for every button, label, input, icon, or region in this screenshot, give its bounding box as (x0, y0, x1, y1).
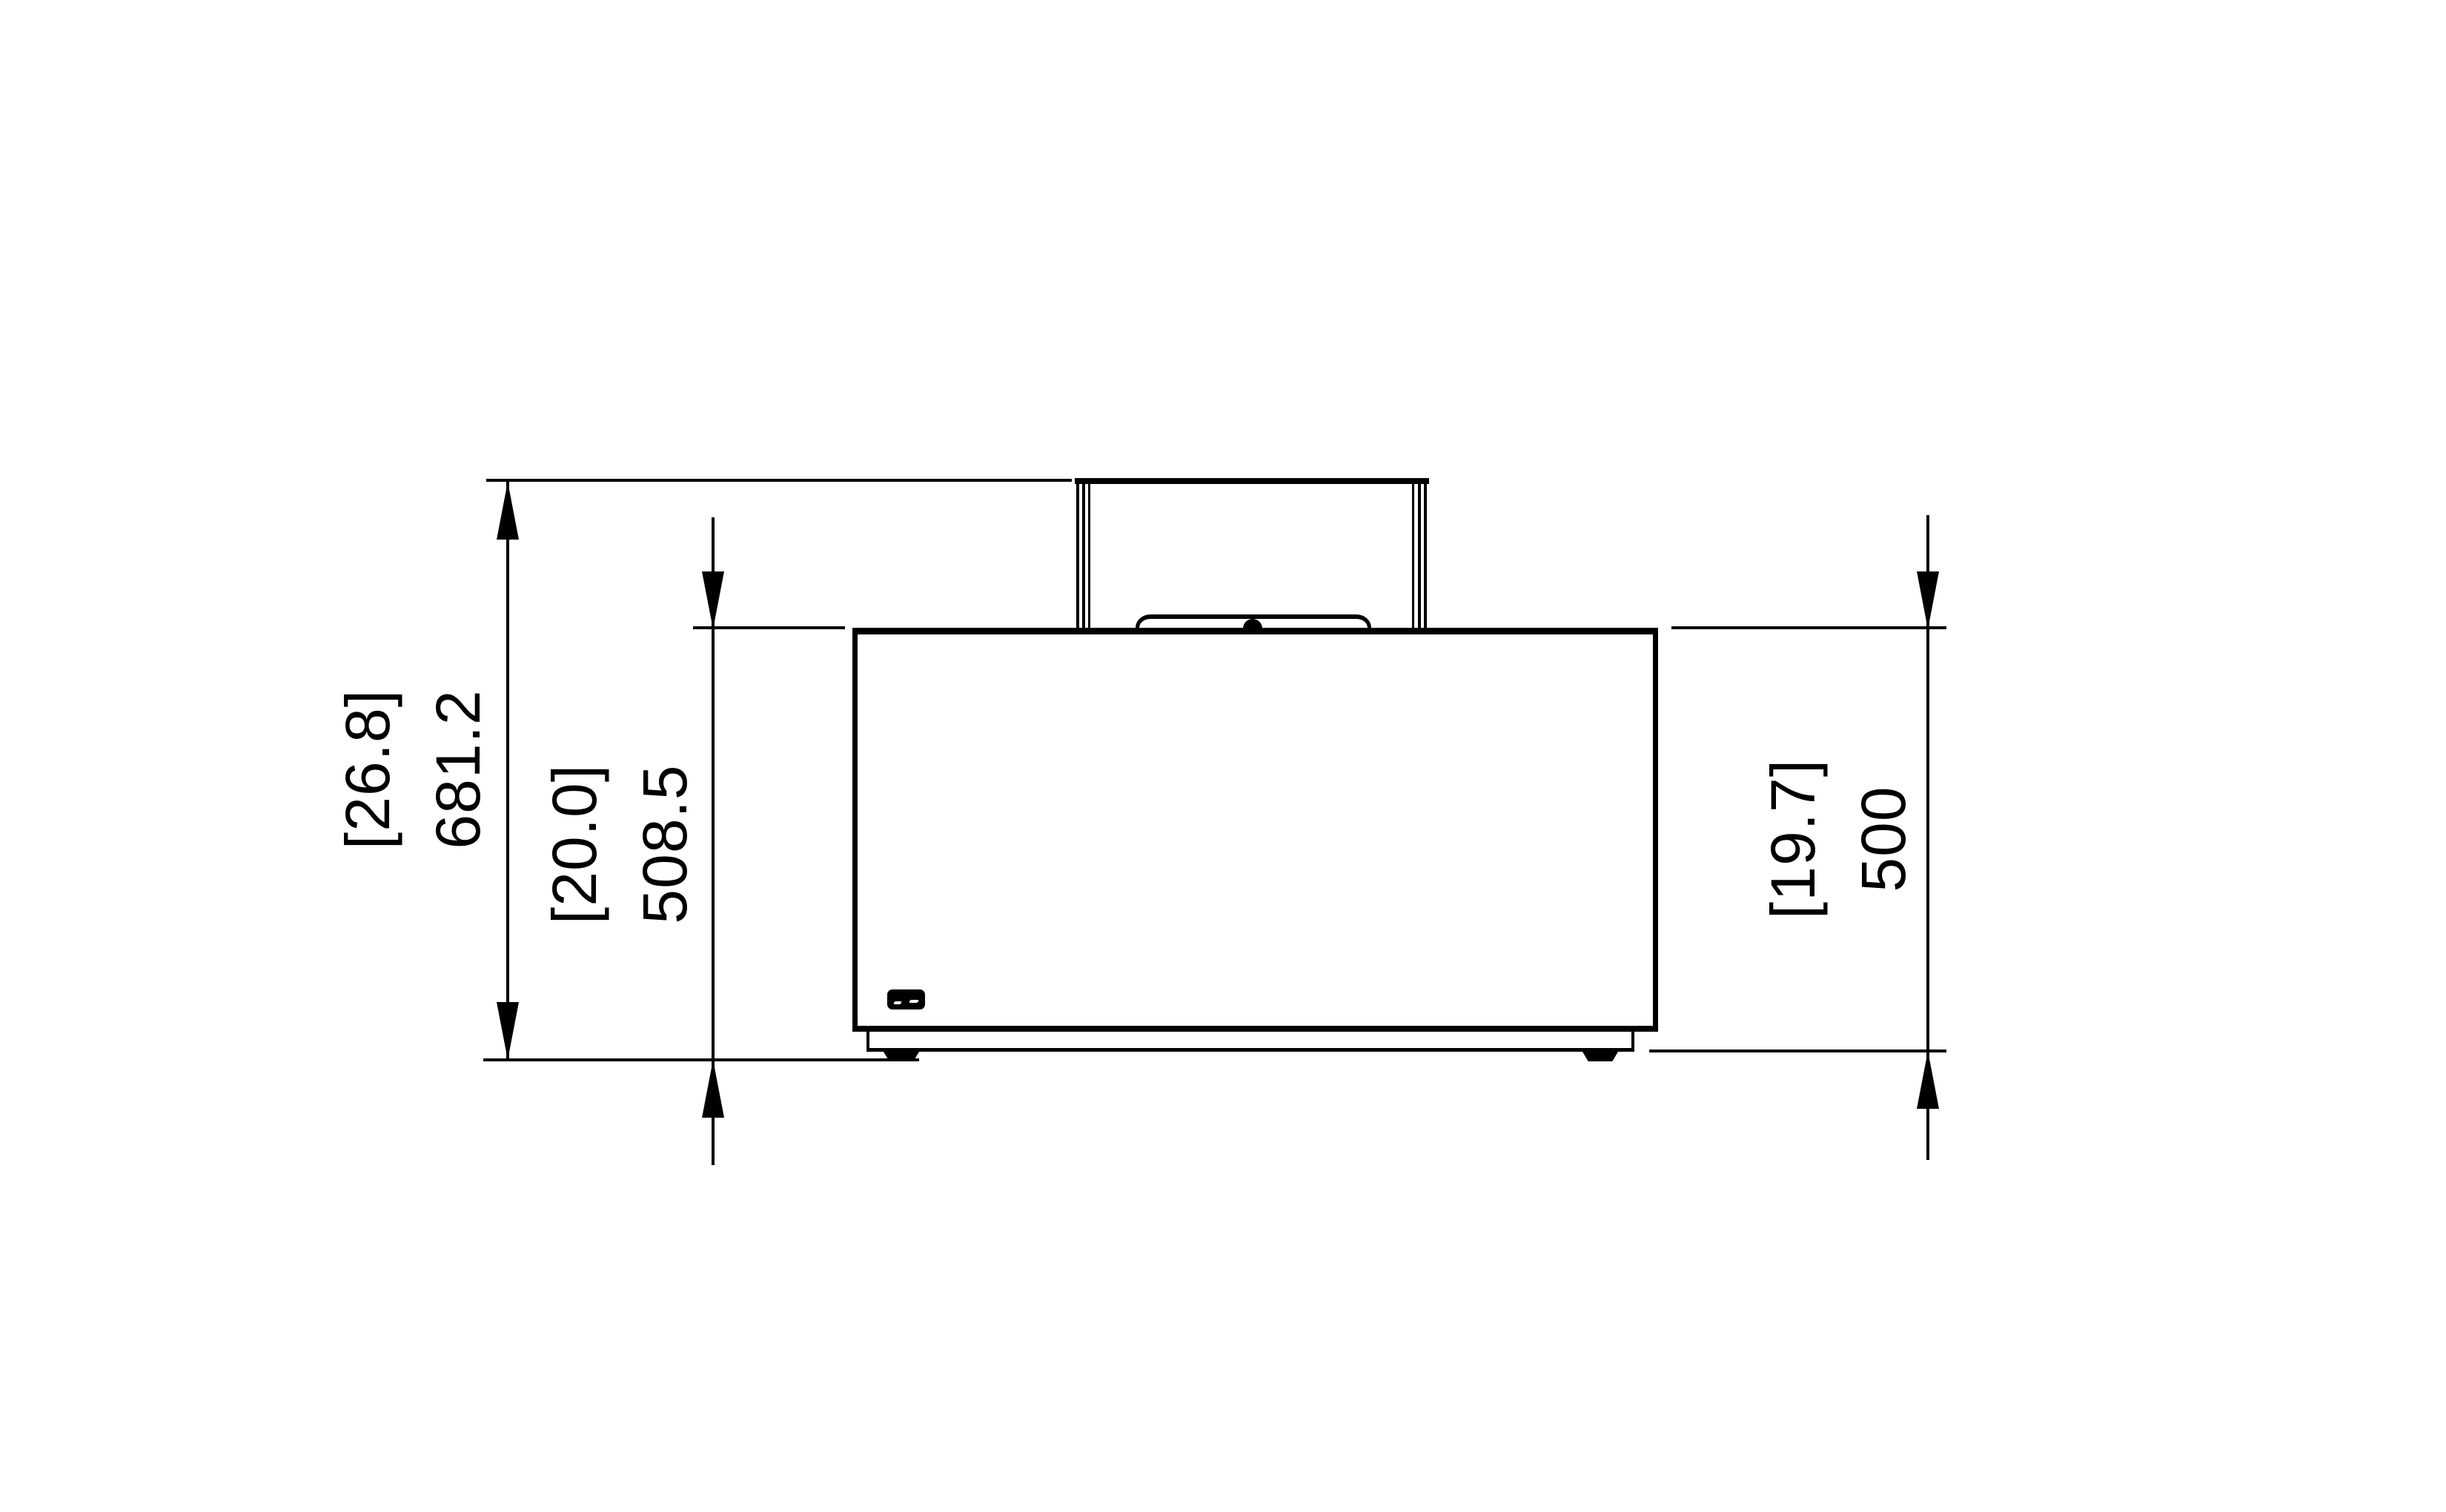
overall-height-mm: 681.2 (413, 689, 503, 849)
brand-badge-mark-right (909, 1000, 919, 1003)
arrowhead-overall-top (497, 482, 519, 540)
body-height-mm: 500 (1838, 759, 1929, 919)
brand-badge-mark-left (893, 1001, 902, 1004)
glass-screen-left-panel-inner (1082, 483, 1085, 629)
arrowhead-incl-feet-top (702, 571, 724, 629)
table-body (852, 628, 1658, 1032)
body-height-inches: [19.7] (1748, 759, 1838, 919)
arrowhead-body-top (1917, 571, 1939, 629)
technical-drawing-canvas: [26.8] 681.2 [20.0] 508.5 [19.7] 500 (0, 0, 2446, 1512)
overall-height-inches: [26.8] (322, 689, 413, 849)
dimension-line-overall-height (506, 480, 509, 1060)
right-foot (1582, 1052, 1618, 1061)
plinth-bottom-edge (866, 1048, 1634, 1052)
height-incl-feet-mm: 508.5 (620, 764, 710, 924)
brand-badge (887, 989, 925, 1009)
glass-screen-right-panel-outer (1424, 483, 1427, 629)
body-height-dimension-text: [19.7] 500 (1748, 759, 1929, 919)
extension-line-screen-top (486, 479, 1072, 482)
height-incl-feet-inches: [20.0] (529, 764, 620, 924)
arrowhead-overall-bottom (497, 1002, 519, 1060)
overall-height-dimension-text: [26.8] 681.2 (322, 689, 503, 849)
arrowhead-body-bottom (1917, 1051, 1939, 1109)
glass-screen-top-frame (1075, 478, 1429, 484)
glass-screen-left-panel-outer (1076, 483, 1079, 629)
extension-line-plinth-bottom-right (1649, 1050, 1946, 1052)
ground-line (483, 1058, 919, 1061)
arrowhead-incl-feet-bottom (702, 1060, 724, 1118)
glass-screen-front-left-edge (1088, 483, 1090, 629)
glass-screen-right-panel-inner (1418, 483, 1421, 629)
height-incl-feet-dimension-text: [20.0] 508.5 (529, 764, 710, 924)
left-foot (884, 1052, 919, 1061)
extension-line-tabletop-right (1671, 626, 1946, 629)
glass-screen-front-right-edge (1412, 483, 1414, 629)
